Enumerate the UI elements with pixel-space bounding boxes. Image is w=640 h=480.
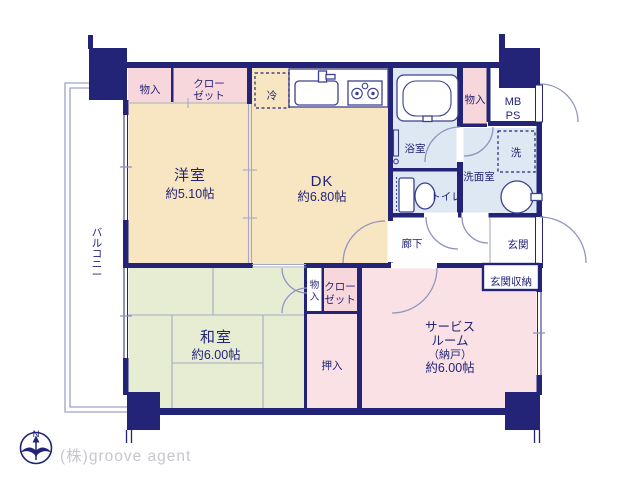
pillar-bottom-right: [505, 392, 540, 430]
toilet-label: トイレ: [430, 191, 462, 203]
hall-label: 廊下: [402, 237, 423, 250]
closet-mid-label-1: クロー: [324, 281, 356, 293]
faucet-icon: [319, 71, 327, 82]
bath-label: 浴室: [405, 142, 426, 155]
closet-top-label-2: ゼット: [193, 90, 225, 102]
ps-label: PS: [506, 110, 521, 122]
dk-label: DK: [311, 173, 334, 190]
floor-plan-page: 物入 クロー ゼット 冷 洋室 約5.10帖 DK 約6.80帖 浴室 物入 M…: [0, 0, 640, 480]
service-room-label-1: サービス: [425, 320, 475, 334]
western-room-label: 洋室: [174, 167, 206, 184]
mbps-door-arc: [540, 84, 578, 122]
toilet-door-arc: [426, 217, 458, 249]
dk-door-opening: [388, 221, 394, 262]
washroom-door-arc: [462, 217, 488, 243]
balcony-label: バルコニー: [92, 227, 103, 281]
compass-north-label: N: [33, 429, 40, 440]
pillar-top-right: [499, 48, 540, 88]
brand-logo-text: (株)groove agent: [60, 447, 191, 465]
compass-icon: N: [20, 429, 52, 464]
fridge-label: 冷: [267, 89, 278, 102]
pillar-top-left: [89, 48, 127, 100]
service-room-size: 約6.00帖: [425, 360, 474, 375]
monoire-top-label: 物入: [140, 83, 161, 96]
washroom-door-opening: [462, 213, 489, 219]
tatami-room-size: 約6.00帖: [191, 347, 240, 362]
service-door-opening: [391, 263, 437, 269]
mb-label: MB: [505, 96, 522, 108]
service-room-label-3: （納戸）: [428, 348, 472, 361]
floor-plan: 物入 クロー ゼット 冷 洋室 約5.10帖 DK 約6.80帖 浴室 物入 M…: [0, 0, 640, 480]
toilet-door-opening: [424, 213, 458, 219]
service-room-label-2: ルーム: [431, 334, 468, 348]
tatami-room-label: 和室: [200, 329, 232, 346]
dk-size: 約6.80帖: [297, 189, 346, 204]
floor-fills: [128, 68, 538, 408]
oshiire-label: 押入: [322, 359, 343, 372]
front-door-opening: [536, 217, 543, 264]
closet-mid-label-2: ゼット: [324, 294, 356, 306]
closet-top-label-1: クロー: [193, 78, 225, 90]
western-room-size: 約5.10帖: [165, 186, 214, 201]
washer-label: 洗: [511, 147, 522, 159]
washroom-label: 洗面室: [463, 170, 495, 183]
kitchen-counter: [289, 69, 388, 107]
entrance-label: 玄関: [508, 238, 529, 251]
pillar-bottom-left: [127, 392, 160, 430]
monoire-bath-label: 物入: [465, 93, 486, 106]
stove-icon: [348, 81, 382, 105]
front-door-arc: [540, 217, 586, 263]
kitchen-sink: [295, 81, 338, 105]
entrance-storage-label: 玄関収納: [490, 275, 532, 288]
bath-door-opening: [457, 127, 464, 162]
mbps-door-opening: [536, 85, 543, 122]
